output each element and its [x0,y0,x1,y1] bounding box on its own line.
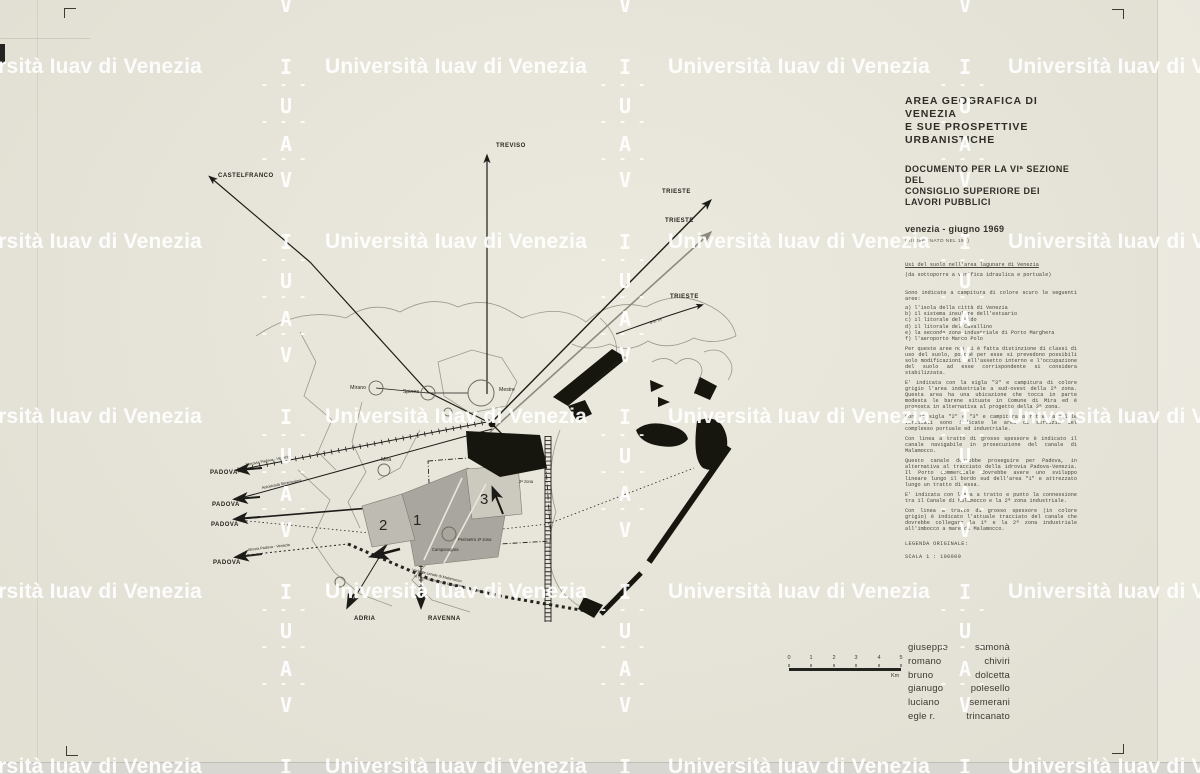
lido-strip [649,447,729,562]
credit-last: samonà [975,641,1010,655]
scale-minor-tick [879,664,880,667]
description-column: AREA GEOGRAFICA DI VENEZIA E SUE PROSPET… [905,95,1077,560]
mestre-junction-dot [489,421,496,428]
label-treviso: TREVISO [496,143,526,149]
label-adria: ADRIA [354,616,376,622]
label-mira: Mira [381,457,391,463]
credit-row: giuseppesamonà [908,641,1010,655]
credit-row: egle r.trincanato [908,710,1010,724]
scanned-map-sheet: { "watermark": { "text": "Università Iua… [0,0,1200,773]
paragraph: Per queste aree non si è fatta distinzio… [905,346,1077,376]
label-mestre: Mestre [499,387,515,393]
scale-tick: 2 [832,655,835,661]
label-padova-1: PADOVA [210,470,238,476]
paragraph: Con linea a tratto di grosso spessore (i… [905,508,1077,532]
label-zone-1: 1 [413,512,421,529]
sheet-title-line2: E SUE PROSPETTIVE URBANISTICHE [905,121,1077,147]
scale-minor-tick [834,664,835,667]
scale-tick: 0 [787,655,790,661]
area-list: a) l'isola della città di Venezia b) il … [905,305,1077,342]
sheet-subtitle-line2: CONSIGLIO SUPERIORE DEI LAVORI PUBBLICI [905,186,1077,208]
paragraph: E' indicata con linea a tratto e punto l… [905,492,1077,504]
legend-label: LEGENDA ORIGINALE: [905,541,1077,547]
credit-first: luciano [908,696,940,710]
paragraph: Con linea a tratto di grosso spessore è … [905,436,1077,454]
label-padova-4: PADOVA [213,560,241,566]
redrawn-note: (RIDISEGNATO NEL 19..) [905,239,1077,244]
scale-minor-tick [901,664,902,667]
text-heading: Usi del suolo nell'area lagunare di Vene… [905,262,1077,268]
scale-tick: 3 [854,655,857,661]
scale-minor-tick [811,664,812,667]
label-perimetro: Perimetro 2ª zona [458,537,492,542]
credit-first: egle r. [908,710,935,724]
label-zona2: 2ª zona [519,479,534,484]
credit-last: chiviri [984,655,1010,669]
credit-row: gianugopolesello [908,682,1010,696]
credit-row: romanochiviri [908,655,1010,669]
airport-area [553,349,627,406]
list-item: f) l'aeroporto Marco Polo [905,336,1077,342]
label-padova-3: PADOVA [211,522,239,528]
scale-minor-tick [789,664,790,667]
label-mirano: Mirano [350,385,366,391]
label-trieste-3: TRIESTE [670,294,699,300]
credit-last: dolcetta [975,669,1010,683]
scale-unit: Km [891,673,899,679]
label-zone-3: 3 [480,491,488,508]
map-labels: TREVISO CASTELFRANCO TRIESTE TRIESTE TRI… [210,143,699,622]
scale-tick: 1 [809,655,812,661]
place-date: venezia - giugno 1969 [905,224,1077,234]
scale-bar-line [789,668,901,671]
scale-minor-tick [856,664,857,667]
label-camponogara: Camponogara [432,547,459,552]
credit-first: giuseppe [908,641,948,655]
scale-tick-labels: 0 1 2 3 4 5 [783,655,913,663]
label-castelfranco: CASTELFRANCO [218,173,274,179]
scale-tick: 4 [877,655,880,661]
credit-first: gianugo [908,682,943,696]
paragraph: Questo canale dovrebbe proseguire per Pa… [905,458,1077,488]
scale-label: SCALA 1 : 100000 [905,554,1077,560]
credit-last: polesello [971,682,1010,696]
venice-island [636,423,688,446]
label-autostrada: Autostrada Serenissima [261,478,302,490]
graphic-scale-bar: 0 1 2 3 4 5 Km [783,655,913,685]
scale-tick: 5 [899,655,902,661]
lido-strips [601,447,729,614]
credit-last: trincanato [966,710,1010,724]
label-spinea: Spinea [403,389,419,395]
credit-row: lucianosemerani [908,696,1010,710]
text-intro: Sono indicate a campitura di colore scur… [905,290,1077,302]
credit-last: semerani [969,696,1010,710]
paragraph: Con la sigla "2" e "3" e campitura a ret… [905,414,1077,432]
label-ss14: S.S. 14 [649,317,662,324]
sheet-subtitle-line1: DOCUMENTO PER LA VIª SEZIONE DEL [905,164,1077,186]
pellestrina-strip [601,573,641,614]
label-ravenna: RAVENNA [428,616,461,622]
credits-list: giuseppesamonà romanochiviri brunodolcet… [908,641,1010,724]
credit-row: brunodolcetta [908,669,1010,683]
label-zone-2: 2 [379,517,387,534]
label-trieste-1: TRIESTE [662,189,691,195]
label-trieste-2: TRIESTE [665,218,694,224]
credit-first: romano [908,655,941,669]
sheet-title-line1: AREA GEOGRAFICA DI VENEZIA [905,95,1077,121]
paragraph: E' indicata con la sigla "3" e campitura… [905,380,1077,410]
label-padova-2: PADOVA [212,502,240,508]
text-subheading: (da sottoporre a verifica idraulica e po… [905,272,1077,278]
